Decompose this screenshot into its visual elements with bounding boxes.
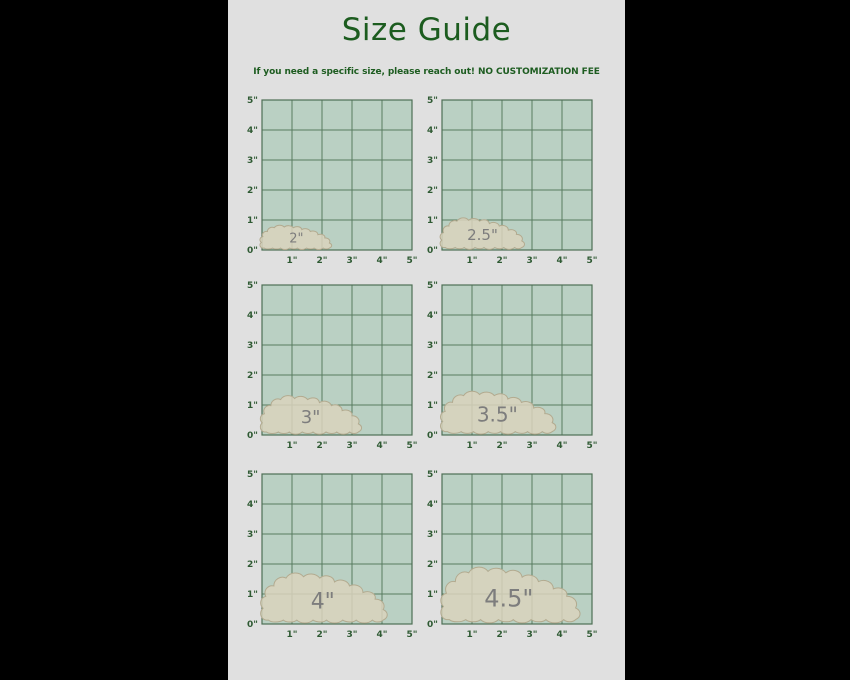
blob-size-label: 4.5" — [484, 584, 533, 612]
y-tick-label: 0" — [427, 620, 438, 630]
size-guide-card: Size Guide If you need a specific size, … — [228, 0, 625, 680]
y-tick-label: 3" — [427, 341, 438, 351]
y-tick-label: 1" — [247, 401, 258, 411]
size-grid-panel-3in: 3"5"4"3"2"1"0"1"2"3"4"5" — [240, 279, 422, 451]
x-tick-label: 1" — [287, 441, 298, 451]
x-tick-label: 4" — [557, 256, 568, 266]
x-tick-label: 3" — [527, 630, 538, 640]
x-tick-label: 2" — [497, 256, 508, 266]
y-tick-label: 1" — [247, 216, 258, 226]
x-tick-label: 5" — [407, 256, 418, 266]
y-tick-label: 1" — [427, 590, 438, 600]
size-grid-panel-3.5in: 3.5"5"4"3"2"1"0"1"2"3"4"5" — [420, 279, 602, 451]
blob-size-label: 4" — [311, 589, 335, 614]
y-tick-label: 5" — [247, 470, 258, 480]
x-tick-label: 2" — [317, 256, 328, 266]
x-tick-label: 4" — [557, 441, 568, 451]
y-tick-label: 2" — [247, 371, 258, 381]
y-tick-label: 3" — [247, 530, 258, 540]
x-tick-label: 3" — [347, 630, 358, 640]
x-tick-label: 5" — [587, 630, 598, 640]
x-tick-label: 5" — [407, 630, 418, 640]
y-tick-label: 2" — [247, 560, 258, 570]
y-tick-label: 4" — [247, 126, 258, 136]
customization-note: If you need a specific size, please reac… — [228, 67, 625, 77]
y-tick-label: 4" — [427, 311, 438, 321]
y-tick-label: 1" — [427, 401, 438, 411]
size-grid-panel-4in: 4"5"4"3"2"1"0"1"2"3"4"5" — [240, 468, 422, 640]
x-tick-label: 2" — [497, 441, 508, 451]
y-tick-label: 0" — [247, 246, 258, 256]
y-tick-label: 0" — [427, 431, 438, 441]
blob-size-label: 2.5" — [467, 226, 498, 244]
y-tick-label: 3" — [427, 156, 438, 166]
x-tick-label: 4" — [377, 441, 388, 451]
blob-size-label: 2" — [289, 231, 303, 246]
size-grid-panel-2.5in: 2.5"5"4"3"2"1"0"1"2"3"4"5" — [420, 94, 602, 266]
x-tick-label: 5" — [407, 441, 418, 451]
y-tick-label: 4" — [247, 500, 258, 510]
y-tick-label: 0" — [247, 620, 258, 630]
y-tick-label: 5" — [427, 281, 438, 291]
y-tick-label: 0" — [247, 431, 258, 441]
x-tick-label: 3" — [527, 441, 538, 451]
blob-size-label: 3.5" — [477, 403, 518, 427]
x-tick-label: 4" — [377, 256, 388, 266]
y-tick-label: 0" — [427, 246, 438, 256]
y-tick-label: 3" — [247, 341, 258, 351]
x-tick-label: 2" — [317, 441, 328, 451]
y-tick-label: 3" — [247, 156, 258, 166]
x-tick-label: 5" — [587, 256, 598, 266]
y-tick-label: 5" — [247, 281, 258, 291]
page-title: Size Guide — [228, 12, 625, 48]
x-tick-label: 2" — [497, 630, 508, 640]
y-tick-label: 2" — [427, 186, 438, 196]
x-tick-label: 3" — [527, 256, 538, 266]
y-tick-label: 4" — [427, 126, 438, 136]
size-grid-panel-4.5in: 4.5"5"4"3"2"1"0"1"2"3"4"5" — [420, 468, 602, 640]
y-tick-label: 2" — [427, 560, 438, 570]
x-tick-label: 3" — [347, 256, 358, 266]
x-tick-label: 1" — [467, 630, 478, 640]
y-tick-label: 4" — [247, 311, 258, 321]
y-tick-label: 5" — [247, 96, 258, 106]
y-tick-label: 1" — [427, 216, 438, 226]
x-tick-label: 1" — [287, 256, 298, 266]
x-tick-label: 4" — [377, 630, 388, 640]
x-tick-label: 1" — [467, 441, 478, 451]
y-tick-label: 5" — [427, 470, 438, 480]
x-tick-label: 1" — [287, 630, 298, 640]
blob-size-label: 3" — [301, 407, 321, 428]
x-tick-label: 1" — [467, 256, 478, 266]
y-tick-label: 5" — [427, 96, 438, 106]
y-tick-label: 3" — [427, 530, 438, 540]
x-tick-label: 2" — [317, 630, 328, 640]
y-tick-label: 4" — [427, 500, 438, 510]
x-tick-label: 5" — [587, 441, 598, 451]
size-grid-panel-2in: 2"5"4"3"2"1"0"1"2"3"4"5" — [240, 94, 422, 266]
y-tick-label: 2" — [427, 371, 438, 381]
y-tick-label: 1" — [247, 590, 258, 600]
x-tick-label: 3" — [347, 441, 358, 451]
x-tick-label: 4" — [557, 630, 568, 640]
y-tick-label: 2" — [247, 186, 258, 196]
